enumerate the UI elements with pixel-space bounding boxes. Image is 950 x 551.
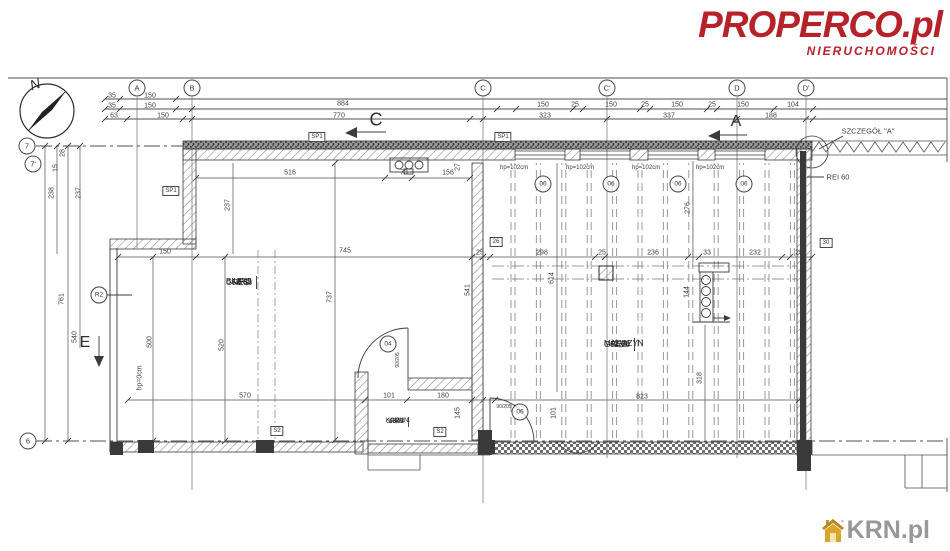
dimension-label: 101 <box>383 393 395 400</box>
dimension-label: 298 <box>536 250 548 257</box>
dimension-label: 540 <box>72 331 79 343</box>
type-marker-06: 06 <box>512 404 529 421</box>
dimension-label: 27 <box>455 163 462 171</box>
dimension-label: 318 <box>697 372 704 384</box>
window-sill-label: hp=102cm <box>632 165 660 171</box>
dimension-label: 150 <box>144 103 156 110</box>
dimension-label: 745 <box>339 248 351 255</box>
dimension-label: 25 <box>641 102 649 109</box>
dimension-label: 884 <box>337 101 349 108</box>
type-marker-r2: R2 <box>91 287 108 304</box>
dimension-label: 236 <box>647 250 659 257</box>
dimension-label: 25 <box>598 250 606 257</box>
dimension-label: 150 <box>605 102 617 109</box>
dimension-label: 737 <box>327 291 334 303</box>
room-floor: GRES <box>600 339 648 351</box>
wall-tag-sp1: SP1 <box>162 186 179 196</box>
window-type-marker: 06 <box>535 176 552 193</box>
dimension-label: 25 <box>795 250 803 257</box>
wall-tag-sp1: SP1 <box>494 132 511 142</box>
dimension-label: 770 <box>333 113 345 120</box>
dimension-label: 90/205 <box>395 352 401 367</box>
dimension-label: 516 <box>284 170 296 177</box>
dimension-label: 28 <box>60 149 67 157</box>
properco-logo: PROPERCO.pl NIERUCHOMOŚCI <box>698 6 942 57</box>
dimension-label: 25 <box>571 102 579 109</box>
grid-bubble-B: B <box>184 80 201 97</box>
callout-label: REI 60 <box>827 173 850 182</box>
dimension-label: 101 <box>551 407 558 419</box>
grid-bubble-D: D <box>729 80 746 97</box>
grid-bubble-6: 6 <box>20 433 37 450</box>
dimension-label: 150 <box>537 102 549 109</box>
window-sill-label: hp=102cm <box>566 165 594 171</box>
dimension-label: 188 <box>765 113 777 120</box>
dimension-label: 520 <box>219 339 226 351</box>
dimension-label: 237 <box>76 187 83 199</box>
dimension-label: 150 <box>737 102 749 109</box>
window-type-marker: 06 <box>670 176 687 193</box>
dimension-label: 323 <box>539 113 551 120</box>
dimension-label: 500 <box>147 336 154 348</box>
dimension-label: 35 <box>108 103 116 110</box>
wall-tag-26: 26 <box>490 237 503 247</box>
grid-bubble-C: C <box>475 80 492 97</box>
dimension-label: 150 <box>144 93 156 100</box>
wall-tag-s2: S2 <box>433 427 446 437</box>
dimension-label: 156 <box>442 170 454 177</box>
krn-house-icon <box>822 519 844 543</box>
grid-bubble-A: A <box>129 80 146 97</box>
dimension-label: 150 <box>159 249 171 256</box>
krn-logo-text: KRN.pl <box>847 516 930 545</box>
room-floor: GRES <box>382 418 416 427</box>
dimension-label: 150 <box>157 113 169 120</box>
window-sill-label: hp=102cm <box>696 165 724 171</box>
dimension-label: 180 <box>437 393 449 400</box>
dimension-label: 104 <box>787 102 799 109</box>
labels-layer: N 2/05 BIURO 56,68 GRES 2/06 MAGAZYN 62,… <box>0 0 950 551</box>
dimension-label: 614 <box>549 272 556 284</box>
window-type-marker: 06 <box>736 176 753 193</box>
dimension-label: 35 <box>108 93 116 100</box>
wall-tag-s2: S2 <box>270 426 283 436</box>
section-marker-c: C <box>370 110 383 131</box>
wall-tag-sp1: SP1 <box>308 132 325 142</box>
window-type-marker: 06 <box>603 176 620 193</box>
dimension-label: hp=0cm <box>137 365 144 390</box>
dimension-label: 33 <box>703 250 711 257</box>
dimension-label: 761 <box>59 293 66 305</box>
dimension-label: 145 <box>455 407 462 419</box>
grid-bubble-D': D' <box>798 80 815 97</box>
dimension-label: 276 <box>685 202 692 214</box>
callout-label: SZCZEGÓŁ "A" <box>842 127 895 136</box>
properco-logo-text: PROPERCO.pl <box>698 6 942 43</box>
grid-bubble-C': C' <box>599 80 616 97</box>
type-marker-04: 04 <box>380 336 397 353</box>
dimension-label: 25 <box>708 102 716 109</box>
grid-bubble-7: 7 <box>19 138 36 155</box>
north-label: N <box>28 75 43 93</box>
room-floor: GRES <box>222 277 270 289</box>
dimension-label: 232 <box>749 250 761 257</box>
krn-logo: KRN.pl <box>822 516 930 545</box>
dimension-label: 15 <box>53 164 60 172</box>
properco-tagline: NIERUCHOMOŚCI <box>698 45 936 57</box>
dimension-label: 150 <box>671 102 683 109</box>
window-sill-label: hp=102cm <box>500 165 528 171</box>
dimension-label: 237 <box>225 199 232 211</box>
grid-bubble-7': 7' <box>25 156 42 173</box>
dimension-label: 73 <box>400 170 408 177</box>
wall-tag-30: 30 <box>820 238 833 248</box>
dimension-label: 570 <box>239 393 251 400</box>
section-marker-e: E <box>80 334 91 352</box>
floor-plan-page: { "branding": { "properco_name": "PROPER… <box>0 0 950 551</box>
dimension-label: 25 <box>476 250 484 257</box>
dimension-label: 337 <box>663 113 675 120</box>
section-marker-a: A <box>731 113 742 131</box>
dimension-label: 144 <box>684 286 691 298</box>
dimension-label: 823 <box>636 394 648 401</box>
dimension-label: 541 <box>465 284 472 296</box>
dimension-label: 238 <box>49 187 56 199</box>
dimension-label: 90/205 <box>496 404 511 410</box>
dimension-label: 63 <box>110 113 118 120</box>
